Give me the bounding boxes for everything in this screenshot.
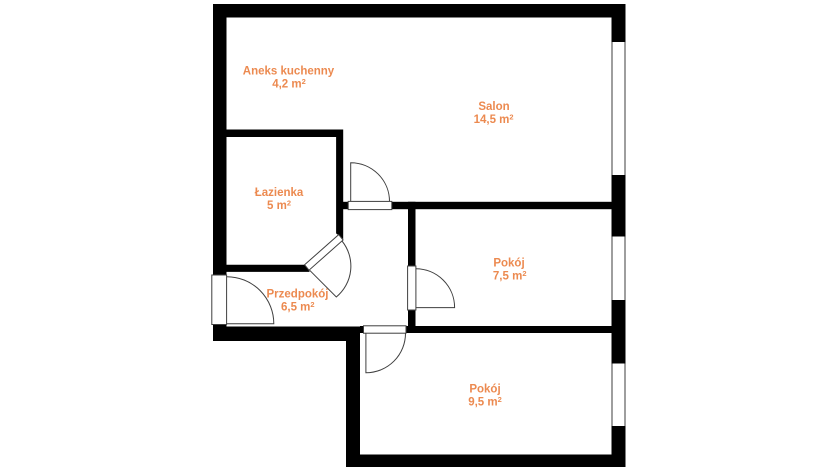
svg-text:Pokój: Pokój [493, 257, 524, 269]
svg-text:14,5 m2: 14,5 m2 [474, 112, 514, 126]
svg-text:7,5 m2: 7,5 m2 [493, 269, 527, 283]
svg-text:9,5 m2: 9,5 m2 [468, 395, 502, 409]
svg-text:Przedpokój: Przedpokój [267, 289, 329, 301]
svg-text:4,2 m2: 4,2 m2 [272, 77, 306, 91]
svg-text:Aneks kuchenny: Aneks kuchenny [243, 66, 335, 78]
svg-text:Salon: Salon [478, 101, 509, 113]
svg-text:Pokój: Pokój [469, 383, 500, 395]
svg-text:6,5 m2: 6,5 m2 [281, 300, 315, 314]
svg-text:Łazienka: Łazienka [255, 187, 304, 199]
